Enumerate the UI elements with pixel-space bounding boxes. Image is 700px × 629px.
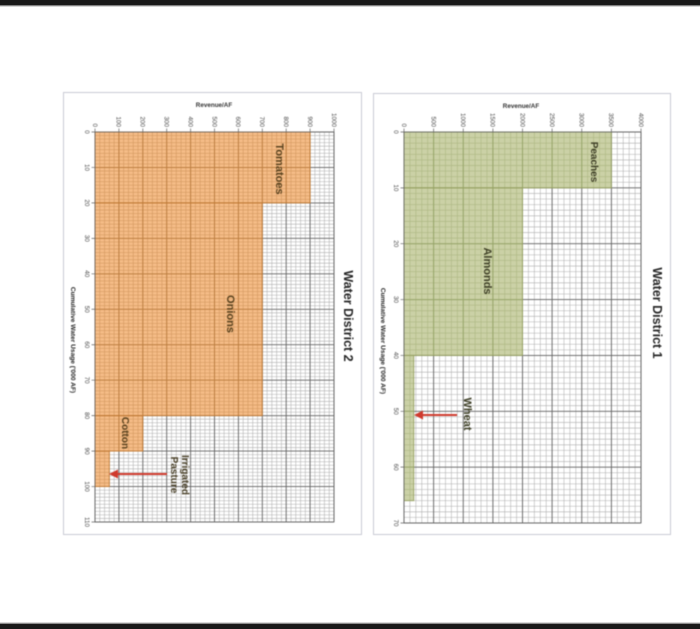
svg-text:Revenue/AF: Revenue/AF (503, 103, 540, 110)
svg-text:Cumulative Water Usage ('000 A: Cumulative Water Usage ('000 AF) (379, 288, 386, 394)
svg-text:10: 10 (392, 184, 399, 192)
svg-text:200: 200 (139, 116, 146, 127)
svg-text:90: 90 (83, 448, 90, 456)
svg-text:0: 0 (400, 123, 407, 127)
svg-text:900: 900 (306, 116, 313, 127)
svg-text:70: 70 (83, 377, 90, 385)
svg-text:400: 400 (186, 116, 193, 127)
svg-text:500: 500 (210, 116, 217, 127)
svg-text:Almonds: Almonds (481, 247, 493, 294)
svg-text:1500: 1500 (489, 113, 496, 128)
svg-text:40: 40 (83, 270, 90, 278)
svg-text:800: 800 (282, 116, 289, 127)
svg-text:50: 50 (392, 408, 399, 416)
svg-text:100: 100 (115, 116, 122, 127)
svg-text:1000: 1000 (330, 113, 337, 128)
svg-text:Pasture: Pasture (168, 457, 179, 494)
svg-text:100: 100 (83, 481, 90, 492)
svg-text:30: 30 (83, 235, 90, 243)
svg-text:2500: 2500 (548, 113, 555, 128)
svg-text:40: 40 (392, 352, 399, 360)
svg-text:0: 0 (91, 123, 98, 127)
svg-text:3500: 3500 (607, 113, 614, 128)
svg-text:50: 50 (83, 306, 90, 314)
svg-text:0: 0 (392, 130, 399, 134)
svg-text:60: 60 (83, 341, 90, 349)
svg-text:Cumulative Water Usage ('000 A: Cumulative Water Usage ('000 AF) (69, 287, 76, 393)
svg-text:80: 80 (83, 412, 90, 420)
svg-text:600: 600 (234, 116, 241, 127)
svg-text:300: 300 (163, 116, 170, 127)
svg-text:1000: 1000 (459, 113, 466, 128)
svg-text:Onions: Onions (224, 295, 236, 333)
svg-text:Revenue/AF: Revenue/AF (196, 102, 233, 109)
svg-text:20: 20 (83, 199, 90, 207)
svg-text:70: 70 (392, 519, 399, 527)
svg-text:4000: 4000 (637, 113, 644, 128)
svg-text:110: 110 (83, 517, 90, 528)
svg-text:2000: 2000 (518, 113, 525, 128)
svg-text:20: 20 (392, 240, 399, 248)
svg-text:60: 60 (392, 464, 399, 472)
svg-text:Peaches: Peaches (588, 142, 599, 183)
svg-text:500: 500 (429, 116, 436, 127)
svg-text:3000: 3000 (578, 113, 585, 128)
svg-text:700: 700 (258, 116, 265, 127)
svg-text:10: 10 (83, 164, 90, 172)
svg-text:Irrigated: Irrigated (179, 455, 190, 495)
svg-text:0: 0 (83, 130, 90, 134)
svg-text:Water District 2: Water District 2 (341, 270, 355, 361)
svg-text:Cotton: Cotton (119, 417, 130, 449)
svg-text:Tomatoes: Tomatoes (273, 143, 285, 194)
svg-text:30: 30 (392, 296, 399, 304)
svg-text:Water District 1: Water District 1 (650, 267, 664, 358)
svg-text:Wheat: Wheat (461, 398, 473, 431)
